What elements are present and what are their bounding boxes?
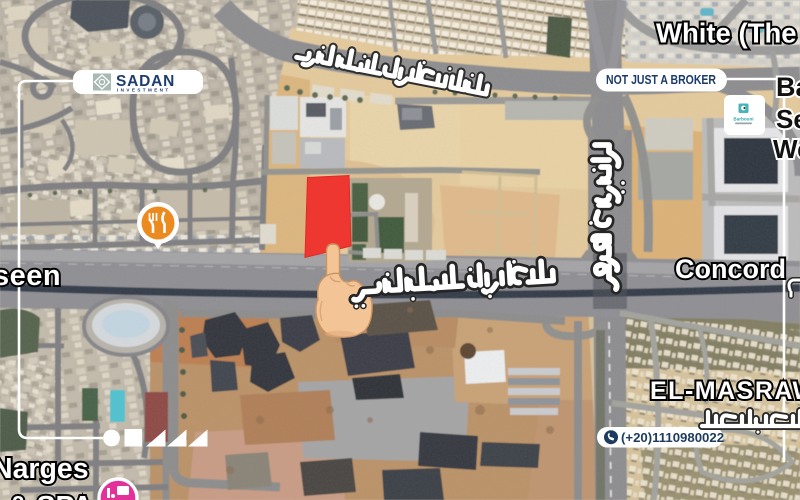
svg-text:Narges: Narges bbox=[0, 453, 89, 485]
svg-text:Ba: Ba bbox=[776, 72, 800, 102]
svg-text:Concord: Concord bbox=[675, 254, 786, 284]
svg-text:seen: seen bbox=[0, 260, 61, 292]
svg-text:We: We bbox=[773, 134, 800, 164]
svg-text:Barbouni: Barbouni bbox=[733, 117, 753, 122]
svg-text:EL-MASRAW: EL-MASRAW bbox=[650, 377, 800, 405]
svg-text:White (The: White (The bbox=[656, 18, 797, 49]
svg-text:& SPA: & SPA bbox=[8, 491, 93, 500]
svg-text:(+20)1110980022: (+20)1110980022 bbox=[621, 430, 724, 445]
svg-text:NOT JUST A BROKER: NOT JUST A BROKER bbox=[606, 73, 716, 87]
svg-text:Se: Se bbox=[776, 104, 800, 134]
svg-text:INVESTMENT: INVESTMENT bbox=[117, 88, 171, 93]
